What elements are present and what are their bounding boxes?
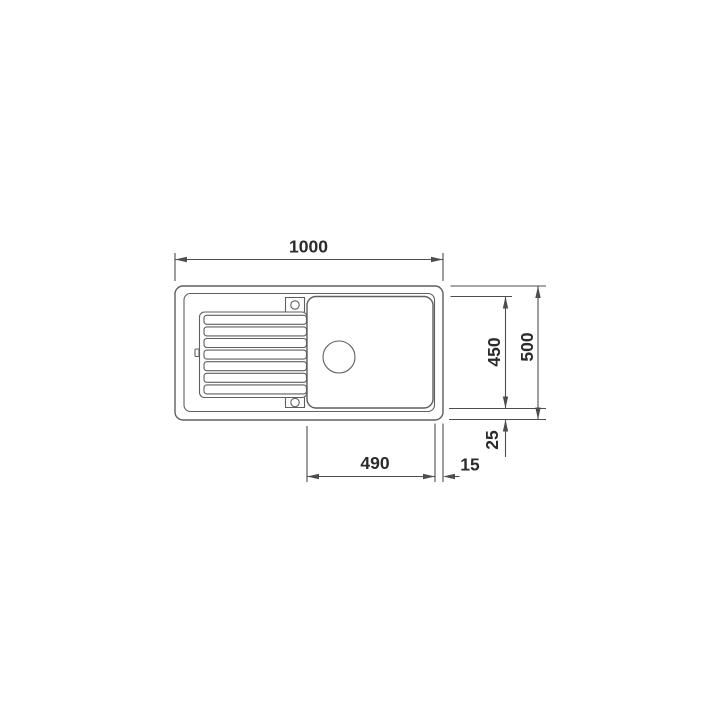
tap-hole-area-top [286, 298, 305, 313]
dimension-label-490: 490 [360, 453, 389, 473]
drainboard-slat [204, 327, 307, 336]
technical-drawing-canvas: 1000 500 450 25 [0, 0, 720, 720]
drainboard-slat [204, 373, 307, 382]
dimension-label-25: 25 [482, 430, 502, 450]
drainboard-slats [204, 315, 307, 394]
dimension-overall-width: 1000 [175, 237, 443, 282]
arrowhead-up [535, 286, 540, 298]
drainboard-slat [204, 315, 307, 324]
drainboard-slat [204, 350, 307, 359]
arrowhead-up [503, 420, 508, 432]
arrowhead-up [503, 297, 508, 309]
tap-hole-area-bottom [286, 398, 305, 408]
tap-hole-bottom [291, 398, 299, 406]
sink-plan-view [175, 286, 443, 420]
arrowhead-left [443, 474, 455, 479]
drainboard-slat [204, 339, 307, 348]
arrowhead-left [175, 257, 187, 262]
sink-bowl [307, 297, 433, 409]
dimension-rim-offset-bottom: 25 [482, 420, 508, 458]
arrowhead-down [503, 397, 508, 409]
tap-hole-top [291, 301, 299, 309]
dimension-label-450: 450 [484, 337, 504, 366]
dimension-rim-offset-right: 15 [443, 424, 480, 483]
arrowhead-left [307, 474, 319, 479]
dimension-label-500: 500 [517, 332, 537, 361]
dimension-bowl-width: 490 [307, 424, 435, 483]
drainboard-slat [204, 385, 307, 394]
dimension-label-1000: 1000 [289, 237, 328, 257]
arrowhead-right [431, 257, 443, 262]
overflow-marker [195, 349, 199, 357]
sink-dimension-drawing: 1000 500 450 25 [0, 0, 720, 720]
arrowhead-down [535, 408, 540, 420]
drainboard [195, 312, 307, 398]
dimension-label-15: 15 [460, 455, 480, 475]
drainboard-slat [204, 362, 307, 371]
arrowhead-right [423, 474, 435, 479]
